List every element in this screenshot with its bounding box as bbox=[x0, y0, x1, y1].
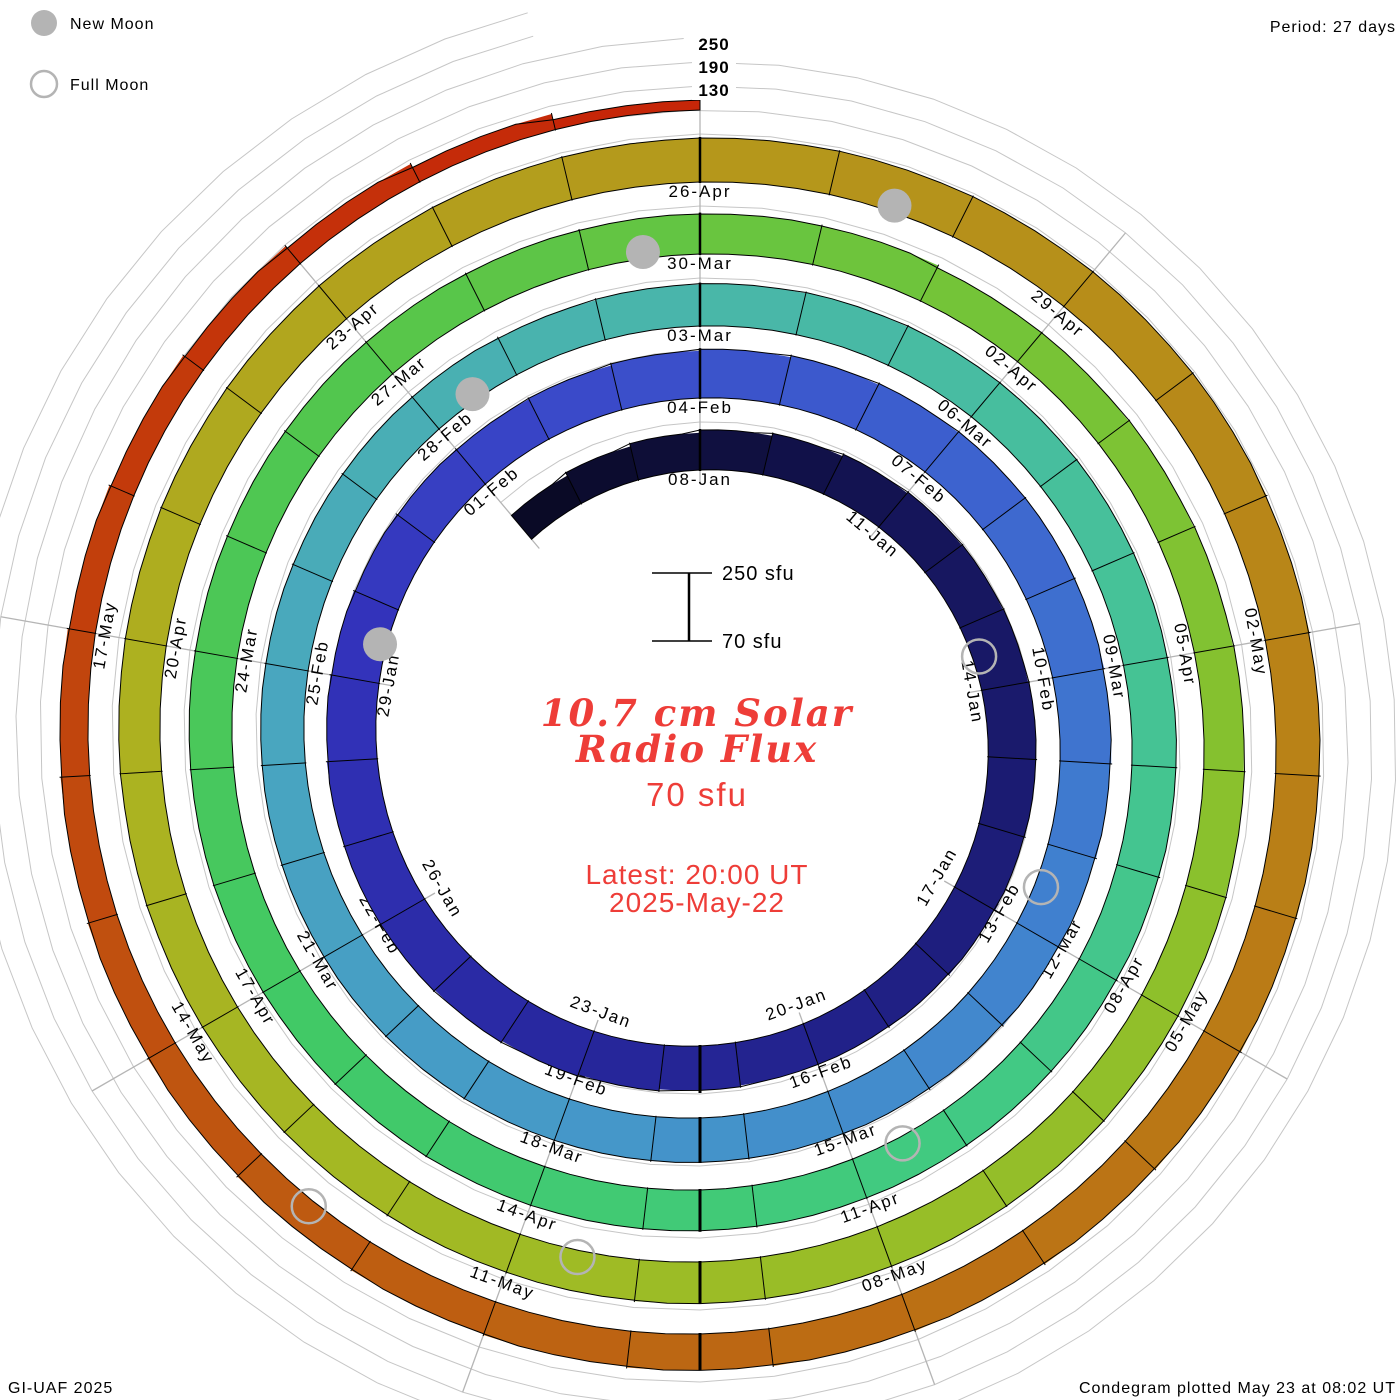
flux-day-segment bbox=[769, 1294, 915, 1366]
legend-full-moon-label: Full Moon bbox=[70, 77, 149, 94]
date-label: 04-Feb bbox=[667, 398, 733, 417]
flux-day-segment bbox=[261, 663, 308, 765]
scale-top-label: 250 sfu bbox=[722, 563, 795, 585]
date-label: 26-Apr bbox=[668, 182, 731, 201]
credit-left: GI-UAF 2025 bbox=[8, 1380, 113, 1397]
flux-day-segment bbox=[433, 158, 572, 247]
flux-day-segment bbox=[1053, 669, 1112, 764]
flux-day-segment bbox=[61, 776, 117, 923]
radial-axis-labels: 250 190 130 bbox=[692, 32, 736, 100]
flux-day-segment bbox=[466, 230, 589, 311]
flux-day-segment bbox=[1048, 761, 1110, 859]
flux-day-segment bbox=[119, 639, 166, 774]
radial-tick-250: 250 bbox=[698, 35, 729, 54]
flux-scale-bar bbox=[652, 573, 712, 641]
moon-legend: New Moon Full Moon bbox=[31, 10, 154, 97]
date-label: 08-Jan bbox=[668, 470, 732, 489]
flux-day-segment bbox=[191, 767, 255, 885]
flux-day-segment bbox=[262, 763, 324, 865]
new-moon-marker bbox=[456, 377, 490, 411]
flux-day-segment bbox=[121, 771, 186, 905]
new-moon-icon bbox=[31, 10, 57, 36]
latest-date-label: 2025-May-22 bbox=[609, 887, 785, 918]
condegram-page: 08-Jan11-Jan14-Jan17-Jan20-Jan23-Jan26-J… bbox=[0, 0, 1400, 1400]
date-label: 30-Mar bbox=[667, 254, 733, 273]
flux-day-segment bbox=[700, 349, 791, 404]
radial-tick-190: 190 bbox=[698, 58, 729, 77]
flux-day-segment bbox=[1186, 769, 1245, 897]
full-moon-icon bbox=[31, 71, 57, 97]
condegram-chart: 08-Jan11-Jan14-Jan17-Jan20-Jan23-Jan26-J… bbox=[0, 0, 1400, 1400]
flux-day-segment bbox=[1204, 906, 1296, 1052]
flux-day-segment bbox=[700, 430, 772, 475]
scale-bottom-label: 70 sfu bbox=[722, 631, 782, 653]
new-moon-marker bbox=[363, 627, 397, 661]
flux-day-segment bbox=[189, 651, 237, 770]
flux-day-segment bbox=[327, 675, 379, 762]
flux-day-segment bbox=[498, 300, 605, 375]
flux-day-segment bbox=[796, 293, 908, 366]
new-moon-marker bbox=[626, 235, 660, 269]
flux-day-segment bbox=[813, 226, 939, 301]
flux-day-segment bbox=[1159, 527, 1234, 653]
radial-tick-130: 130 bbox=[698, 81, 729, 100]
latest-time-label: Latest: 20:00 UT bbox=[585, 859, 808, 890]
current-flux-value: 70 sfu bbox=[646, 776, 748, 813]
flux-day-segment bbox=[1124, 658, 1177, 768]
plotted-timestamp: Condegram plotted May 23 at 08:02 UT bbox=[1079, 1380, 1396, 1397]
flux-day-segment bbox=[982, 682, 1036, 760]
flux-day-segment bbox=[327, 759, 393, 847]
new-moon-marker bbox=[877, 189, 911, 223]
flux-day-segment bbox=[282, 853, 363, 957]
flux-day-segment bbox=[483, 1302, 631, 1366]
legend-new-moon-label: New Moon bbox=[70, 16, 154, 33]
date-label: 03-Mar bbox=[667, 326, 733, 345]
period-label: Period: 27 days bbox=[1270, 19, 1396, 36]
chart-title-line2: Radio Flux bbox=[575, 727, 818, 771]
flux-day-segment bbox=[1255, 774, 1319, 919]
